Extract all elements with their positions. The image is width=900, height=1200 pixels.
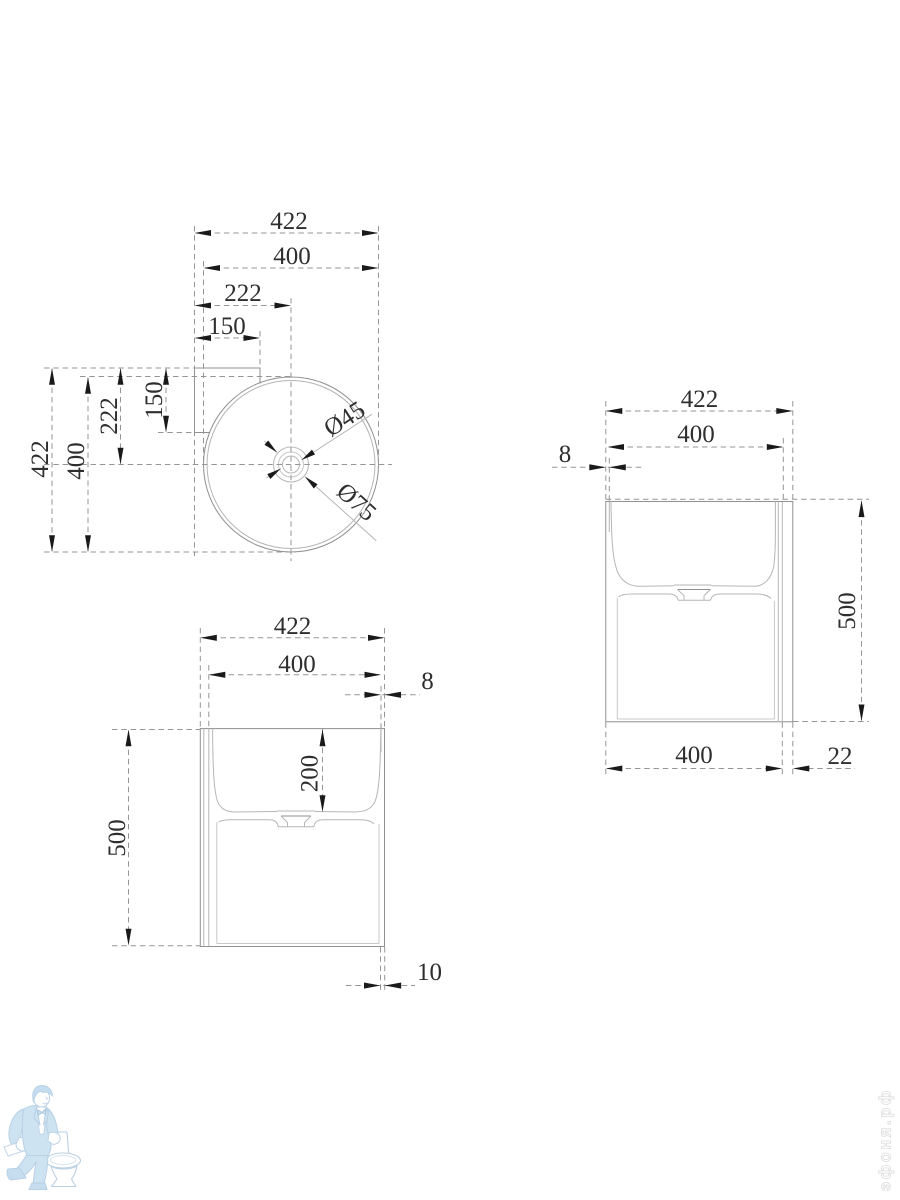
svg-text:222: 222	[96, 397, 123, 435]
svg-text:150: 150	[208, 313, 246, 340]
svg-text:422: 422	[274, 613, 312, 640]
svg-text:400: 400	[278, 651, 316, 678]
svg-text:10: 10	[417, 959, 442, 986]
svg-text:150: 150	[141, 381, 168, 419]
svg-text:200: 200	[297, 755, 324, 793]
svg-text:500: 500	[104, 819, 131, 857]
svg-text:422: 422	[681, 386, 719, 413]
svg-text:422: 422	[270, 208, 308, 235]
svg-text:8: 8	[421, 668, 434, 695]
svg-text:8: 8	[559, 441, 572, 468]
svg-text:400: 400	[677, 421, 715, 448]
svg-text:400: 400	[675, 742, 713, 769]
svg-text:400: 400	[273, 243, 311, 270]
svg-text:400: 400	[63, 442, 90, 480]
svg-text:422: 422	[27, 440, 54, 478]
svg-text:эфоня.рф: эфоня.рф	[877, 1088, 895, 1191]
svg-text:500: 500	[834, 592, 861, 630]
svg-text:222: 222	[224, 280, 262, 307]
svg-text:22: 22	[828, 743, 853, 770]
